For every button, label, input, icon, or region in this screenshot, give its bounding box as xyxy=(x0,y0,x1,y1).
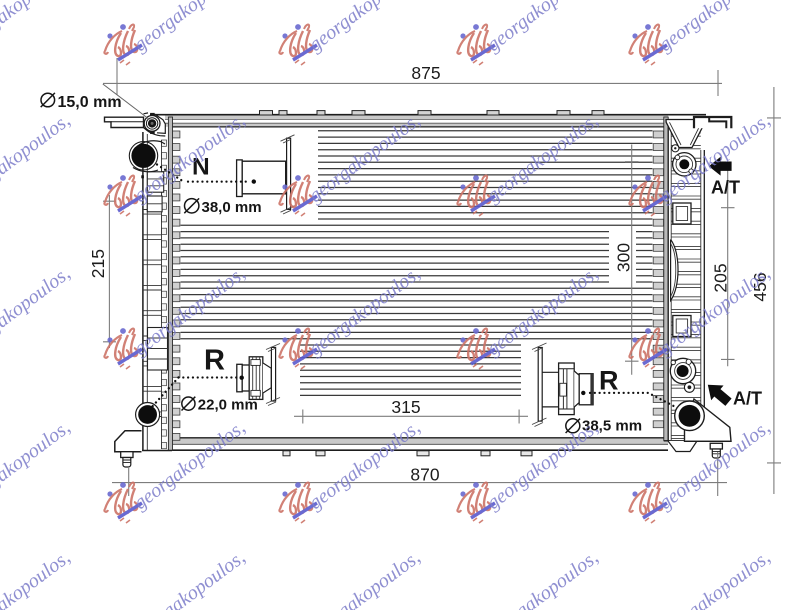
svg-text:A/T: A/T xyxy=(733,389,762,409)
svg-text:A/T: A/T xyxy=(711,178,740,198)
svg-text:22,0 mm: 22,0 mm xyxy=(198,397,258,414)
svg-text:R: R xyxy=(599,366,619,396)
svg-text:875: 875 xyxy=(411,63,440,83)
svg-text:38,0 mm: 38,0 mm xyxy=(202,199,262,216)
svg-text:15,0 mm: 15,0 mm xyxy=(58,94,122,111)
svg-text:R: R xyxy=(204,344,225,376)
svg-text:315: 315 xyxy=(391,397,420,417)
svg-text:215: 215 xyxy=(88,249,108,278)
svg-text:300: 300 xyxy=(613,243,633,272)
svg-text:870: 870 xyxy=(410,465,439,485)
